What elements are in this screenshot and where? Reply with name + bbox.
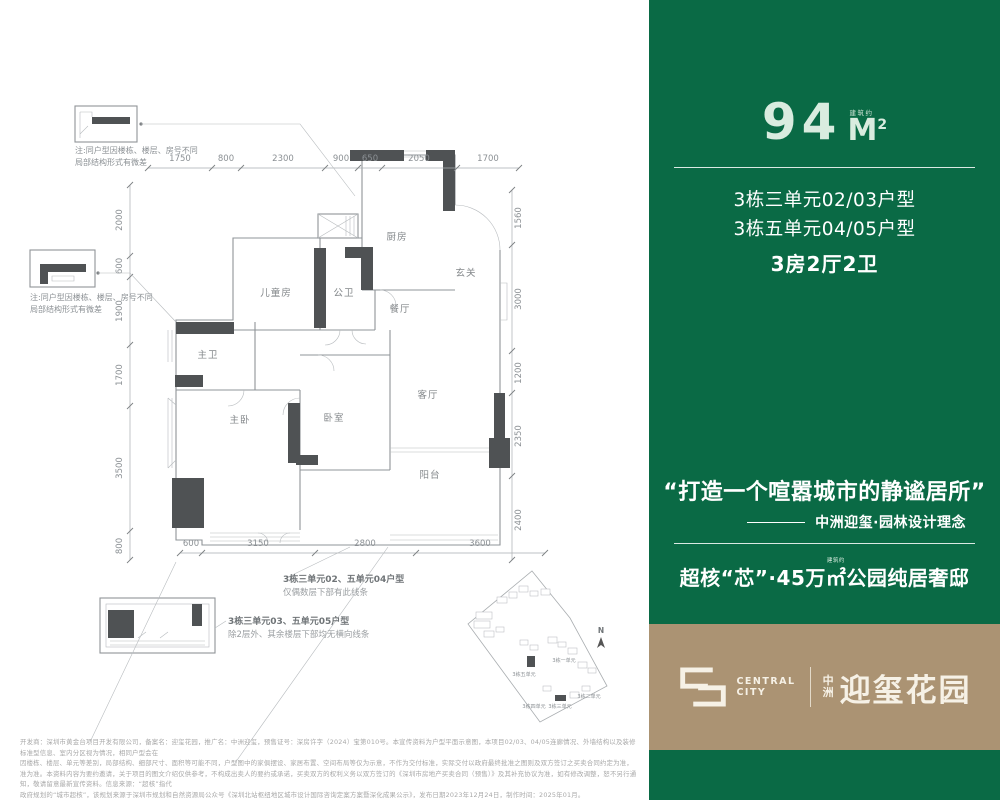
divider-top <box>674 167 975 168</box>
door-arcs <box>228 290 396 543</box>
site-label-unit4: 3栋四单元 <box>522 703 545 710</box>
svg-text:2000: 2000 <box>115 209 125 231</box>
attribution-text: 中洲迎玺·园林设计理念 <box>815 512 966 532</box>
room-label-entry: 玄关 <box>455 267 476 279</box>
note-2-line-2: 局部结构形式有微差 <box>30 304 102 314</box>
area-value: 94 <box>762 102 842 143</box>
divider-bottom <box>674 543 975 544</box>
brand-cn-mark: 中 洲 <box>823 675 834 699</box>
room-layout: 3房2厅2卫 <box>649 248 1000 277</box>
highlighted-unit-5 <box>527 656 535 667</box>
north-arrow-icon <box>597 637 605 648</box>
site-map-buildings <box>474 586 596 701</box>
disclaimer-line-2: 因楼栋、楼层、单元等差别，局部结构、细部尺寸、面积等可能不同，户型图中的家俱摆设… <box>20 758 638 769</box>
area-badge: 94 建筑约 M2 <box>649 102 1000 143</box>
disclaimer: 开发商：深圳市黄金台项目开发有限公司，备案名：迎玺花园，推广名：中洲迎玺，预售证… <box>20 737 638 800</box>
annotation-2-sub: 除2层外、其余楼层下部均无横向线条 <box>228 629 370 640</box>
attribution-dash <box>747 522 805 523</box>
svg-text:3000: 3000 <box>514 288 524 310</box>
room-label-bath: 公卫 <box>333 288 354 299</box>
svg-text:900: 900 <box>333 154 349 164</box>
quote-attribution: 中洲迎玺·园林设计理念 <box>747 512 966 532</box>
room-label-master-bath: 主卫 <box>197 349 218 361</box>
svg-text:2050: 2050 <box>408 154 430 164</box>
note-1-line-2: 局部结构形式有微差 <box>75 157 147 167</box>
dimension-bottom: 600 3150 2800 3600 <box>177 539 548 556</box>
unit-type-line-2: 3栋五单元04/05户型 <box>649 215 1000 241</box>
slogan-approx-label: 建筑约 <box>827 556 845 564</box>
slogan-pre: 超核“芯”·45万 <box>680 566 826 590</box>
disclaimer-line-4: 政府规划的“城市超核”，该规划来源于深圳市规划和自然资源局公众号《深圳北站枢纽地… <box>20 790 638 800</box>
room-label-kitchen: 厨房 <box>386 231 407 243</box>
poster: 厨房 玄关 餐厅 公卫 儿童房 主卫 主卧 卧室 客厅 阳台 1750 800 … <box>0 0 1000 800</box>
svg-text:1200: 1200 <box>514 362 524 384</box>
svg-text:2350: 2350 <box>514 425 524 447</box>
area-unit: M2 <box>847 118 887 144</box>
unit-type-line-1: 3栋三单元02/03户型 <box>649 186 1000 212</box>
room-label-bedroom: 卧室 <box>323 412 344 424</box>
site-label-unit3: 3栋三单元 <box>548 703 571 710</box>
site-label-unit2: 3栋二单元 <box>577 693 600 700</box>
svg-text:800: 800 <box>115 538 125 554</box>
svg-text:2400: 2400 <box>514 509 524 531</box>
structural-walls <box>172 150 510 528</box>
brand-bar: CENTRAL CITY 中 洲 迎玺花园 <box>649 624 1000 750</box>
slogan: 超核“芯”·45万建筑约㎡公园纯居奢邸 <box>649 562 1000 591</box>
slogan-post: 公园纯居奢邸 <box>846 566 969 590</box>
room-label-dining: 餐厅 <box>389 303 410 315</box>
svg-text:3600: 3600 <box>469 539 491 549</box>
brand-name: 迎玺花园 <box>840 665 972 710</box>
site-map: 3栋五单元 3栋一单元 3栋二单元 3栋四单元 3栋三单元 N <box>468 571 607 722</box>
svg-text:1700: 1700 <box>477 154 499 164</box>
note-1-line-1: 注:同户型因楼栋、楼层、房号不同 <box>75 145 198 155</box>
note-2-line-1: 注:同户型因楼栋、楼层、房号不同 <box>30 292 153 302</box>
disclaimer-line-3: 准为准。本资料内容为要约邀请，关于项目的图文介绍仅供参考，不构成出卖人的要约或承… <box>20 769 638 790</box>
plan-annotations: 3栋三单元02、五单元04户型 仅偶数层下部有此线条 3栋三单元03、五单元05… <box>228 573 404 640</box>
room-label-living: 客厅 <box>417 389 438 401</box>
svg-text:1560: 1560 <box>514 207 524 229</box>
room-label-kids: 儿童房 <box>260 287 292 299</box>
quote: “打造一个喧嚣城市的静谧居所” <box>649 474 1000 506</box>
svg-text:600: 600 <box>115 258 125 274</box>
info-panel: 94 建筑约 M2 3栋三单元02/03户型 3栋五单元04/05户型 3房2厅… <box>649 0 1000 800</box>
svg-text:600: 600 <box>183 539 199 549</box>
svg-text:1900: 1900 <box>115 300 125 322</box>
svg-text:650: 650 <box>362 154 378 164</box>
disclaimer-line-1: 开发商：深圳市黄金台项目开发有限公司，备案名：迎玺花园，推广名：中洲迎玺，预售证… <box>20 737 638 758</box>
site-label-unit5: 3栋五单元 <box>512 671 535 678</box>
elevator-core <box>318 214 358 238</box>
svg-text:1700: 1700 <box>115 364 125 386</box>
slogan-unit: 建筑约㎡ <box>826 562 847 591</box>
annotation-1-title: 3栋三单元02、五单元04户型 <box>283 573 404 585</box>
dimension-top: 1750 800 2300 900 650 2050 1700 <box>145 154 522 171</box>
highlighted-unit-3 <box>555 695 566 701</box>
floor-plan: 厨房 玄关 餐厅 公卫 儿童房 主卫 主卧 卧室 客厅 阳台 1750 800 … <box>0 0 648 800</box>
north-label: N <box>598 626 604 635</box>
logo-divider <box>810 667 811 707</box>
annotation-2-title: 3栋三单元03、五单元05户型 <box>228 615 349 627</box>
svg-text:2300: 2300 <box>272 154 294 164</box>
entry-door-arc <box>455 205 500 250</box>
dimension-right: 1560 3000 1200 2350 2400 <box>509 187 524 563</box>
detail-callout-2: 注:同户型因楼栋、楼层、房号不同 局部结构形式有微差 <box>30 250 176 322</box>
central-city-wordmark: CENTRAL CITY <box>736 676 795 698</box>
svg-text:2800: 2800 <box>354 539 376 549</box>
central-city-logo-icon <box>677 665 729 709</box>
svg-text:1750: 1750 <box>169 154 191 164</box>
detail-callout-1: 注:同户型因楼栋、楼层、房号不同 局部结构形式有微差 <box>75 106 355 196</box>
svg-text:3500: 3500 <box>115 457 125 479</box>
room-label-balcony: 阳台 <box>419 469 440 481</box>
room-label-master-bed: 主卧 <box>229 414 250 426</box>
site-label-unit1: 3栋一单元 <box>552 657 575 664</box>
svg-text:800: 800 <box>218 154 234 164</box>
annotation-1-sub: 仅偶数层下部有此线条 <box>283 587 369 598</box>
svg-text:3150: 3150 <box>247 539 269 549</box>
room-labels: 厨房 玄关 餐厅 公卫 儿童房 主卫 主卧 卧室 客厅 阳台 <box>197 231 476 481</box>
dimension-left: 2000 600 1900 1700 3500 800 <box>115 182 133 563</box>
